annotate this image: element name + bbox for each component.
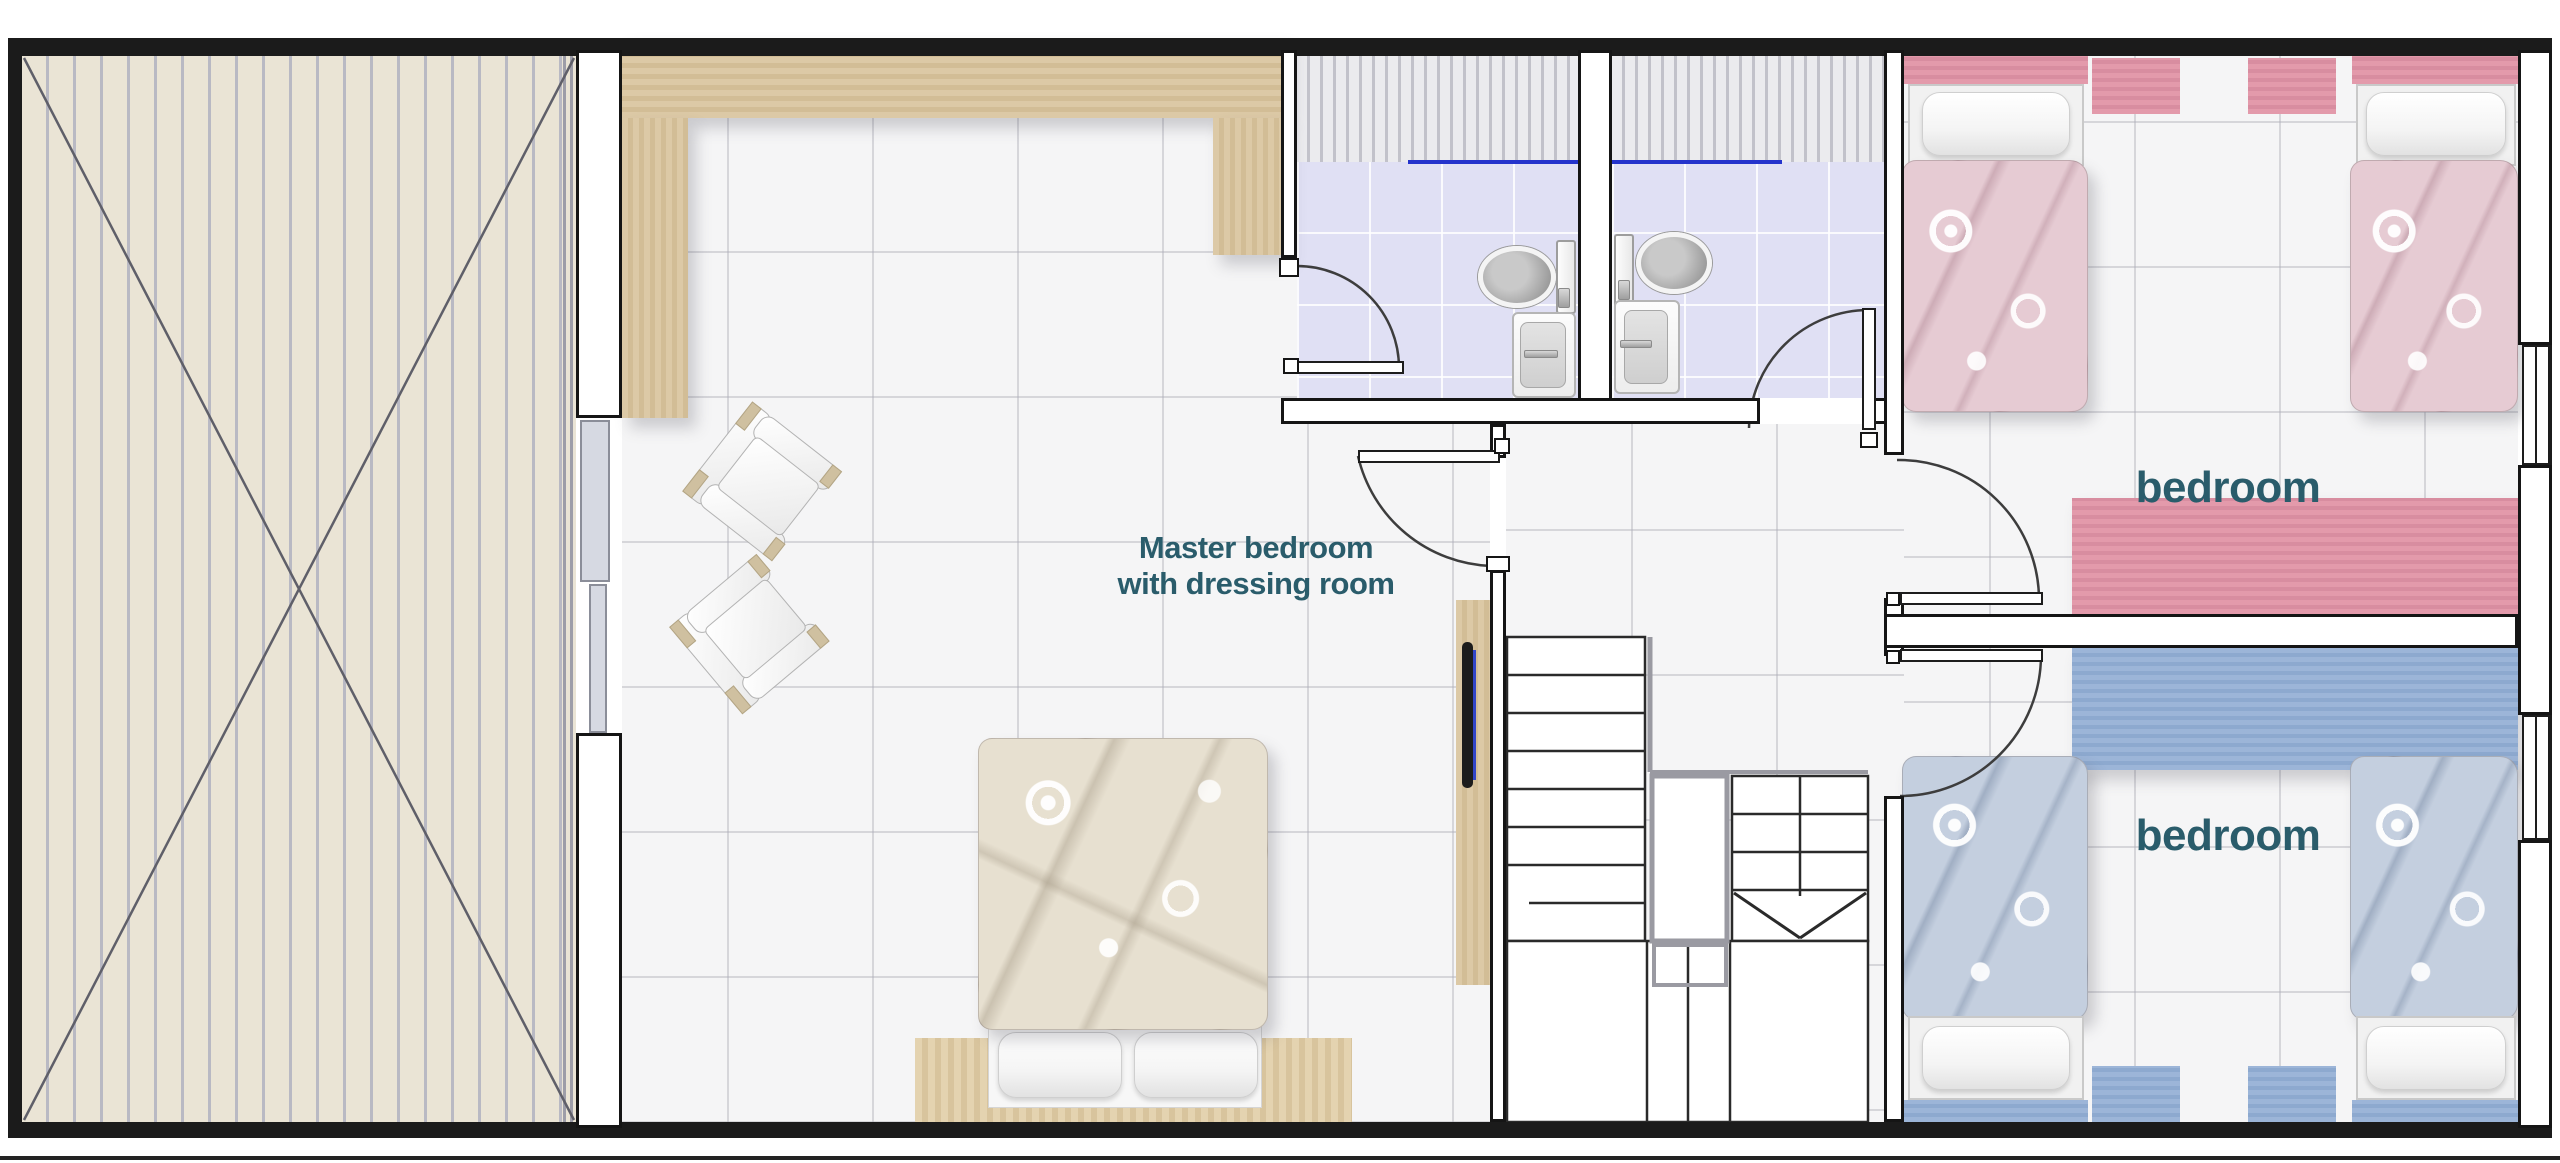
window-glazing-line [2535, 347, 2537, 463]
door-arc-bedroom-blue [1900, 656, 2041, 796]
floor-plan: Master bedroom with dressing room bedroo… [0, 0, 2560, 1163]
door-arc-bath-left [1297, 266, 1399, 368]
door-leaf-bedroom-blue [1900, 649, 2043, 662]
room-label-bedroom-top: bedroom [2058, 464, 2398, 512]
door-hinge [1283, 358, 1299, 374]
door-leaf-bath-left [1297, 361, 1404, 374]
sliding-door-panel [589, 584, 607, 733]
wall-bedrooms-divider [1884, 614, 2518, 648]
wall-right-lower [2518, 840, 2552, 1128]
wall-bath-bottom [1281, 398, 1760, 424]
window-glazing-line [2535, 717, 2537, 838]
wall-bath-left [1281, 50, 1297, 258]
outer-wall-left [8, 38, 22, 1138]
wall-bath-divider [1578, 50, 1612, 424]
door-hinge [1494, 438, 1510, 454]
outer-wall-bottom [8, 1122, 2552, 1138]
door-arc-bath-right [1749, 310, 1869, 428]
wall-right-upper [2518, 50, 2552, 345]
wall-master-hall [1490, 570, 1506, 1122]
wall-bedrooms-left-lower [1884, 796, 1904, 1122]
room-label-master-line2: with dressing room [1040, 566, 1472, 602]
door-hinge [1886, 592, 1900, 606]
room-label-master: Master bedroom with dressing room [1040, 530, 1472, 602]
door-hinge [1886, 650, 1900, 664]
wall-end-cap [1279, 258, 1299, 277]
door-arc-bedroom-pink [1897, 460, 2039, 598]
door-leaf-bedroom-pink [1900, 592, 2043, 605]
door-hinge [1860, 432, 1878, 448]
outer-wall-top [8, 38, 2552, 56]
room-label-bedroom-bottom: bedroom [2058, 812, 2398, 860]
page-bottom-rule [0, 1156, 2560, 1160]
sliding-door-panel [580, 420, 610, 582]
wall-terrace-master-top [576, 50, 622, 418]
room-label-master-line1: Master bedroom [1040, 530, 1472, 566]
wall-bedrooms-left-upper [1884, 50, 1904, 455]
terrace-cross-icon [24, 58, 574, 1120]
wall-terrace-master-bottom [576, 733, 622, 1128]
door-leaf-master [1358, 450, 1500, 463]
door-leaf-bath-right [1862, 308, 1876, 430]
wall-right-middle [2518, 465, 2552, 715]
